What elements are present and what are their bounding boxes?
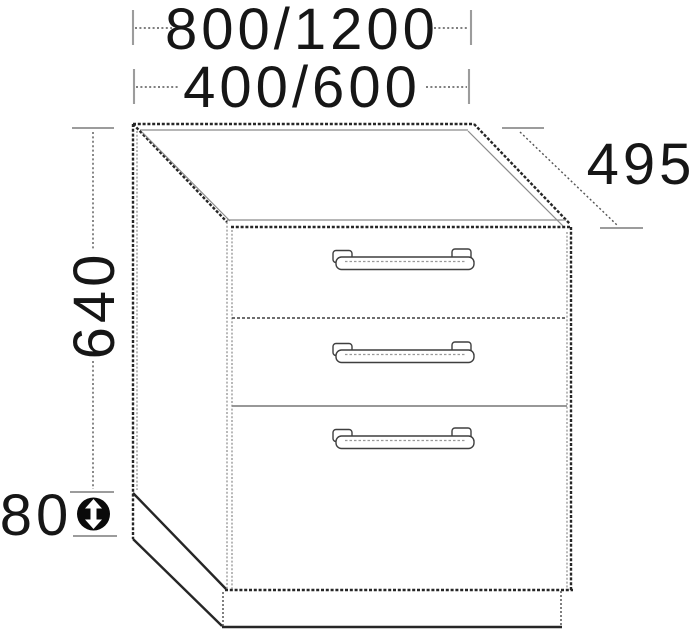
cabinet-left-side bbox=[133, 124, 226, 626]
dim-height: 640 bbox=[62, 128, 127, 492]
cabinet-plinth bbox=[222, 591, 562, 627]
dim-width-primary: 800/1200 bbox=[133, 0, 471, 62]
dim-label-width-secondary: 400/600 bbox=[183, 55, 421, 120]
dim-depth: 495 bbox=[502, 128, 695, 228]
dim-label-depth: 495 bbox=[587, 132, 696, 197]
drawer-handle-1 bbox=[333, 249, 474, 270]
cabinet-dimension-diagram: 800/1200 400/600 495 640 80 bbox=[0, 0, 696, 630]
dim-label-width-primary: 800/1200 bbox=[165, 0, 439, 62]
drawer-handle-2 bbox=[333, 342, 474, 363]
dim-label-height: 640 bbox=[62, 251, 127, 360]
dim-width-secondary: 400/600 bbox=[134, 55, 469, 120]
cabinet-drawing bbox=[133, 124, 573, 627]
cabinet-front-face bbox=[225, 222, 573, 590]
cabinet-drawing-canvas: 800/1200 400/600 495 640 80 bbox=[0, 0, 696, 630]
dim-label-plinth: 80 bbox=[0, 483, 72, 548]
cabinet-top-face bbox=[133, 124, 571, 227]
drawer-handle-3 bbox=[333, 428, 474, 449]
height-adjustable-icon bbox=[77, 498, 110, 531]
